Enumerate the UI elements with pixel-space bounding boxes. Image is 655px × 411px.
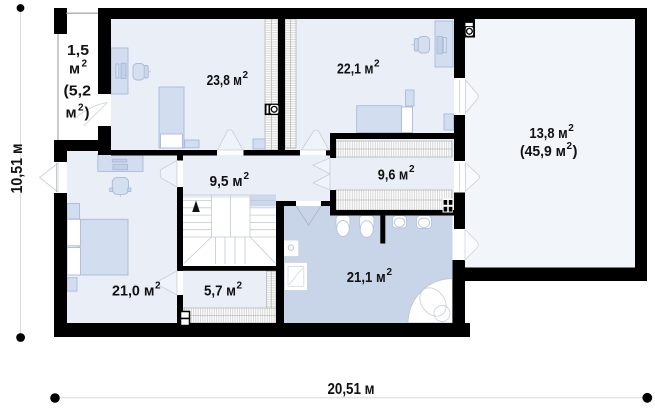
svg-text:2: 2	[82, 59, 88, 70]
svg-text:13,8 м: 13,8 м	[529, 125, 567, 142]
svg-text:9,5 м: 9,5 м	[210, 173, 243, 190]
svg-text:21,0 м: 21,0 м	[112, 283, 155, 300]
svg-text:5,7 м: 5,7 м	[204, 283, 236, 300]
svg-text:2: 2	[243, 70, 249, 81]
svg-text:23,8 м: 23,8 м	[207, 72, 242, 89]
svg-text:): )	[573, 143, 578, 160]
svg-text:10,51 м: 10,51 м	[9, 144, 26, 194]
svg-text:2: 2	[374, 59, 380, 70]
svg-text:(45,9 м: (45,9 м	[520, 143, 566, 160]
svg-text:2: 2	[78, 103, 84, 114]
svg-text:2: 2	[237, 281, 243, 292]
svg-text:м: м	[69, 61, 80, 78]
svg-text:2: 2	[244, 171, 250, 182]
svg-text:20,51 м: 20,51 м	[328, 381, 375, 398]
svg-text:21,1 м: 21,1 м	[347, 269, 386, 286]
svg-text:22,1 м: 22,1 м	[337, 61, 374, 78]
svg-text:2: 2	[568, 123, 574, 134]
svg-text:9,6 м: 9,6 м	[378, 166, 409, 183]
svg-text:(5,2: (5,2	[64, 83, 92, 100]
svg-text:2: 2	[155, 281, 161, 292]
svg-text:м: м	[66, 105, 77, 122]
svg-text:1,5: 1,5	[67, 42, 89, 59]
svg-text:2: 2	[387, 267, 393, 278]
svg-text:): )	[85, 105, 90, 122]
svg-text:2: 2	[409, 164, 415, 175]
